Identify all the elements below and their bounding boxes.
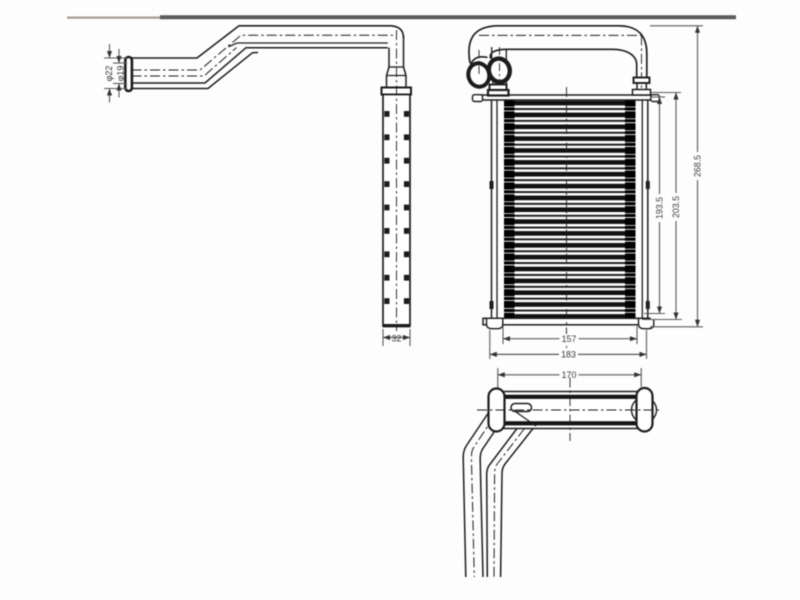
svg-text:170: 170: [562, 370, 577, 380]
svg-text:203.5: 203.5: [671, 196, 681, 218]
svg-text:193.5: 193.5: [655, 197, 665, 219]
svg-text:268.5: 268.5: [693, 155, 703, 177]
svg-text:φ19: φ19: [116, 66, 126, 82]
svg-text:157: 157: [562, 334, 577, 344]
svg-text:183: 183: [561, 350, 576, 360]
svg-text:φ22: φ22: [104, 66, 114, 82]
svg-text:32: 32: [392, 334, 402, 344]
